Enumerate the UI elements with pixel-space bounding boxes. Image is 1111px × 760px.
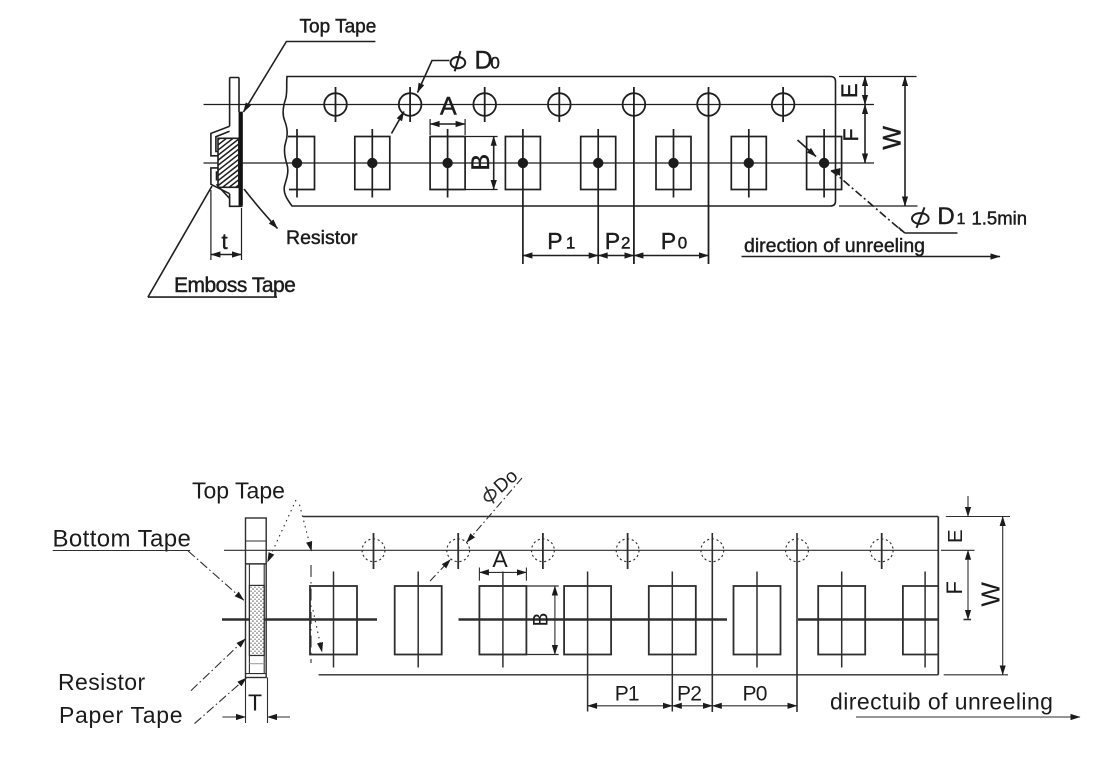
svg-text:P0: P0 xyxy=(743,683,767,706)
svg-text:B: B xyxy=(529,612,552,626)
svg-text:directuib of unreeling: directuib of unreeling xyxy=(830,689,1053,715)
svg-text:P: P xyxy=(605,228,620,254)
svg-text:Bottom Tape: Bottom Tape xyxy=(53,525,192,552)
svg-text:F: F xyxy=(942,581,967,594)
svg-text:1: 1 xyxy=(566,234,575,253)
svg-text:T: T xyxy=(248,689,262,715)
svg-text:0: 0 xyxy=(490,54,499,73)
svg-text:W: W xyxy=(976,582,1006,607)
svg-text:P2: P2 xyxy=(677,683,701,706)
svg-text:1.5min: 1.5min xyxy=(972,208,1028,229)
svg-text:Paper Tape: Paper Tape xyxy=(59,702,183,728)
svg-text:A: A xyxy=(440,93,457,121)
svg-text:direction of unreeling: direction of unreeling xyxy=(744,235,925,257)
svg-text:W: W xyxy=(879,126,907,150)
svg-text:B: B xyxy=(467,154,495,171)
svg-text:P: P xyxy=(661,228,676,254)
svg-text:Resistor: Resistor xyxy=(286,227,358,249)
svg-text:F: F xyxy=(840,129,863,142)
svg-text:2: 2 xyxy=(621,234,630,253)
svg-text:E: E xyxy=(837,83,862,98)
svg-text:Top Tape: Top Tape xyxy=(300,17,377,38)
svg-text:P: P xyxy=(547,228,562,254)
svg-text:D: D xyxy=(937,203,954,230)
svg-text:A: A xyxy=(492,546,508,572)
svg-text:1: 1 xyxy=(957,211,966,228)
svg-text:t: t xyxy=(221,229,227,254)
svg-text:Top Tape: Top Tape xyxy=(192,477,285,503)
svg-text:E: E xyxy=(944,529,967,543)
svg-text:Emboss Tape: Emboss Tape xyxy=(174,274,295,297)
svg-text:Resistor: Resistor xyxy=(58,669,146,695)
svg-text:P1: P1 xyxy=(615,683,639,706)
svg-text:0: 0 xyxy=(678,234,687,253)
